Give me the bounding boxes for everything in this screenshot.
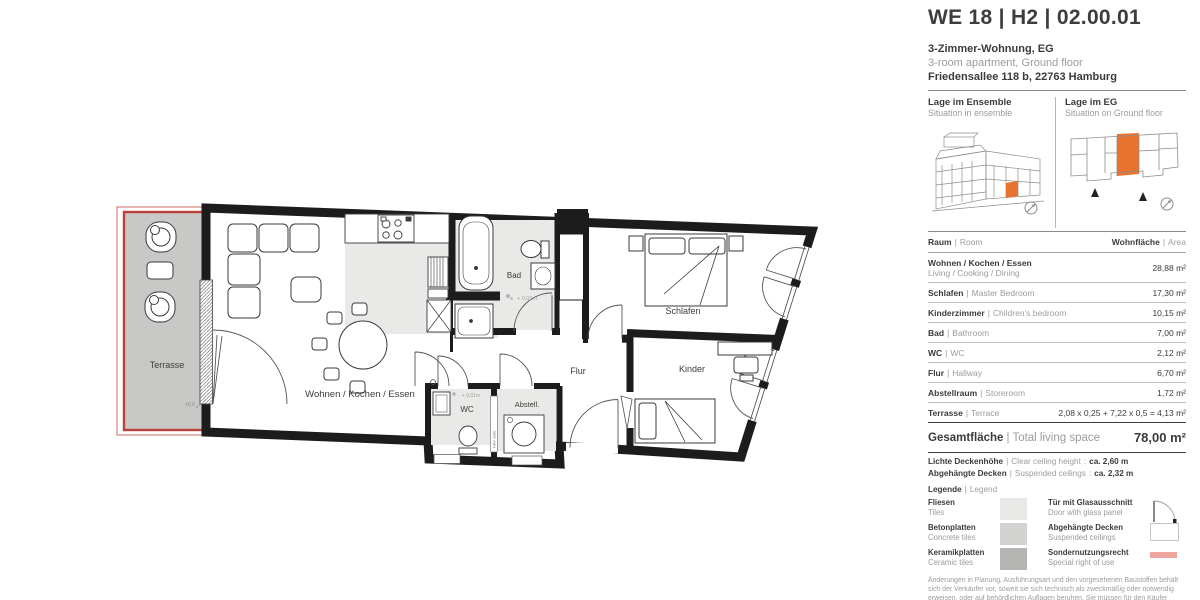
col-room-en: Room	[960, 237, 983, 247]
apartment-type-de: 3-Zimmer-Wohnung, EG	[928, 42, 1117, 56]
table-row: Flur|Hallway 6,70 m²	[928, 363, 1186, 383]
legend-item-ceramic: KeramikplattenCeramic tiles	[928, 548, 1038, 570]
table-row: Bad|Bathroom 7,00 m²	[928, 323, 1186, 343]
table-row: Wohnen / Kochen / EssenLiving / Cooking …	[928, 253, 1186, 283]
terrace-sliding-door	[200, 280, 213, 404]
divider	[928, 90, 1186, 91]
ensemble-sketch	[928, 121, 1048, 221]
address: Friedensallee 118 b, 22763 Hamburg	[928, 70, 1117, 84]
ensemble-title: Lage im Ensemble	[928, 97, 1048, 108]
floor-plan-sheet: Terrasse ±0,0	[0, 0, 1200, 600]
svg-text:+ 0,01m: + 0,01m	[517, 296, 537, 302]
wc-toilet-icon	[459, 426, 477, 446]
svg-text:Schlafen: Schlafen	[665, 306, 700, 316]
highlighted-unit	[1006, 181, 1018, 198]
tiles-swatch	[1000, 498, 1027, 520]
floor-subtitle: Situation on Ground floor	[1065, 108, 1186, 118]
table-row: Schlafen|Master Bedroom 17,30 m²	[928, 283, 1186, 303]
svg-text:Abstell.: Abstell.	[515, 400, 540, 409]
duct-label: HKV verkl.	[492, 430, 496, 448]
compass-icon	[1161, 198, 1173, 210]
room-label-terrasse: Terrasse	[150, 360, 185, 370]
unit-title: WE 18 | H2 | 02.00.01	[928, 6, 1141, 30]
ceramic-swatch	[1000, 548, 1027, 570]
ensemble-location: Lage im Ensemble Situation in ensemble	[928, 97, 1048, 118]
terrace-chair-icon	[145, 292, 175, 322]
shaft	[560, 234, 584, 300]
floor-plan: Terrasse ±0,0	[0, 0, 910, 600]
legend-item-tiles: FliesenTiles	[928, 498, 1038, 520]
glass-door-icon	[1150, 498, 1177, 524]
col-area-de: Wohnfläche	[1112, 237, 1160, 247]
master-bed	[629, 234, 743, 306]
table-header: Raum|Room Wohnfläche|Area	[928, 232, 1186, 253]
svg-text:Flur: Flur	[570, 366, 586, 376]
storeroom	[504, 415, 544, 453]
table-row: WC|WC 2,12 m²	[928, 343, 1186, 363]
table-row: Kinderzimmer|Children's bedroom 10,15 m²	[928, 303, 1186, 323]
terrace-chair-icon	[146, 222, 176, 252]
legend-item-glass-door: Tür mit GlasausschnittDoor with glass pa…	[1048, 498, 1186, 524]
ceiling-heights: Lichte Deckenhöhe|Clear ceiling height:c…	[928, 456, 1133, 479]
legend-item-suspended-ceiling: Abgehängte DeckenSuspended ceilings	[1048, 523, 1186, 542]
apartment-type-en: 3-room apartment, Ground floor	[928, 56, 1117, 70]
info-panel: WE 18 | H2 | 02.00.01 3-Zimmer-Wohnung, …	[928, 0, 1186, 600]
total-label-de: Gesamtfläche	[928, 432, 1003, 444]
col-room-de: Raum	[928, 237, 952, 247]
entrance-marker	[1139, 192, 1147, 201]
svg-text:Wohnen / Kochen / Essen: Wohnen / Kochen / Essen	[305, 389, 415, 400]
floor-sketch	[1065, 121, 1186, 221]
svg-text:Kinder: Kinder	[679, 364, 705, 374]
toilet-icon	[541, 241, 549, 258]
side-table	[291, 277, 321, 302]
col-area-en: Area	[1168, 237, 1186, 247]
highlighted-unit	[1117, 133, 1139, 176]
compass-icon	[1025, 202, 1037, 214]
unit-subtitle: 3-Zimmer-Wohnung, EG 3-room apartment, G…	[928, 42, 1117, 84]
suspended-ceiling-swatch	[1150, 523, 1179, 541]
table-row: Terrasse|Terrace 2,08 x 0,25 + 7,22 x 0,…	[928, 403, 1186, 423]
shaft-wall	[557, 209, 588, 234]
floor-title: Lage im EG	[1065, 97, 1186, 108]
total-row: Gesamtfläche|Total living space 78,00 m²	[928, 422, 1186, 453]
location-section: Lage im Ensemble Situation in ensemble	[928, 97, 1186, 230]
concrete-swatch	[1000, 523, 1027, 545]
floor-location: Lage im EG Situation on Ground floor	[1065, 97, 1186, 118]
svg-text:Bad: Bad	[507, 271, 521, 280]
desk	[718, 342, 772, 355]
entrance-marker	[1091, 188, 1099, 197]
ensemble-subtitle: Situation in ensemble	[928, 108, 1048, 118]
level-mark-terrace: ±0,0	[185, 402, 195, 408]
legend-title: Legende|Legend	[928, 485, 997, 494]
area-table: Raum|Room Wohnfläche|Area Wohnen / Koche…	[928, 231, 1186, 453]
divider	[1055, 97, 1056, 228]
legend-item-special-use: SondernutzungsrechtSpecial right of use	[1048, 548, 1186, 567]
terrace-table-icon	[147, 262, 173, 279]
table-row: Abstellraum|Storeroom 1,72 m²	[928, 383, 1186, 403]
entrance-opening	[566, 443, 618, 454]
total-area-value: 78,00 m²	[1134, 430, 1186, 445]
legend-item-concrete: BetonplattenConcrete tiles	[928, 523, 1038, 545]
disclaimer: Änderungen in Planung, Ausführungsart un…	[928, 576, 1186, 600]
svg-text:+ 0,01m: + 0,01m	[462, 393, 480, 399]
special-right-swatch	[1150, 552, 1177, 558]
svg-text:WC: WC	[460, 405, 474, 414]
total-label-en: Total living space	[1012, 432, 1100, 444]
